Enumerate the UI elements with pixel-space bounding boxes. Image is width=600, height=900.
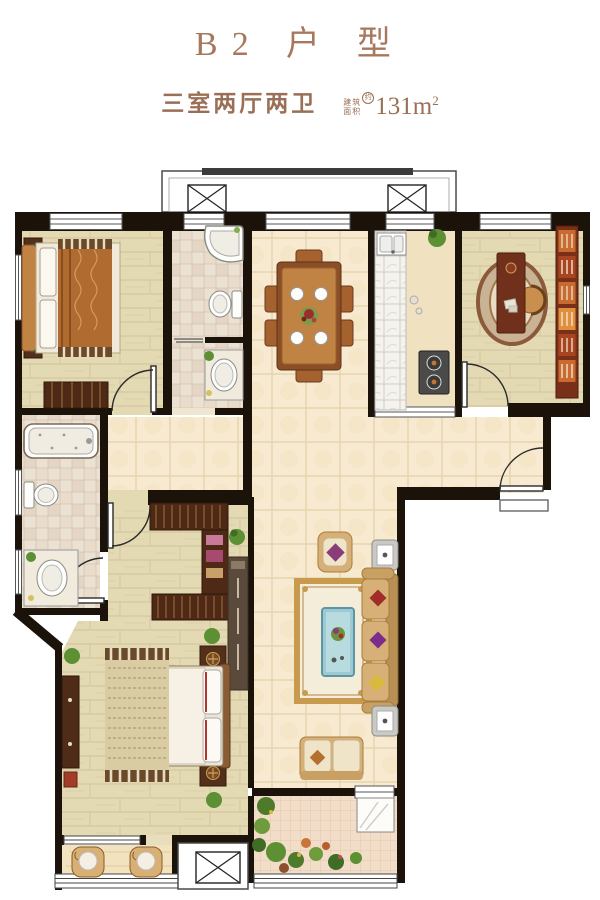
ac-platform-top xyxy=(162,168,456,212)
vanity-sink-icon xyxy=(24,550,78,606)
side-table-icon xyxy=(372,540,398,570)
window xyxy=(16,470,22,515)
bookshelf-icon xyxy=(556,226,578,398)
chaise-icon xyxy=(300,737,363,780)
dresser xyxy=(62,676,79,768)
lounge-chair-icon xyxy=(72,847,104,877)
centerpiece-flowers xyxy=(300,307,318,325)
east-wall-study xyxy=(583,231,590,417)
west-wall-lower xyxy=(55,645,62,890)
coffee-table-icon xyxy=(322,608,354,676)
window xyxy=(386,214,434,230)
window xyxy=(64,836,140,844)
tv-cabinet xyxy=(228,557,248,690)
sofa-icon xyxy=(362,568,398,713)
dresser xyxy=(44,382,108,408)
chamfer-wall xyxy=(16,611,60,648)
plant-icon xyxy=(206,792,222,808)
plant-icon xyxy=(204,628,220,644)
railing xyxy=(55,874,178,888)
window xyxy=(16,550,22,594)
hall-floor xyxy=(108,417,543,493)
window xyxy=(16,255,22,320)
toilet-icon xyxy=(24,482,58,508)
stove-icon xyxy=(419,351,449,394)
lounge-chair-icon xyxy=(130,847,162,877)
window xyxy=(584,286,590,314)
armchair-icon xyxy=(318,532,352,572)
entry-step xyxy=(500,500,548,511)
door-mat xyxy=(357,798,394,832)
ac-unit-icon xyxy=(196,852,240,883)
sliding-door xyxy=(355,786,394,798)
floor-plan-svg xyxy=(0,0,600,900)
fringe-rug xyxy=(105,648,169,782)
window xyxy=(266,214,350,230)
bathtub-icon xyxy=(24,424,98,458)
side-table-icon xyxy=(372,706,398,736)
kitchen-counter xyxy=(375,231,406,410)
toilet-icon xyxy=(209,291,242,318)
kitchen-sink-icon xyxy=(377,233,406,255)
desk-icon xyxy=(497,253,525,333)
vanity-sink-icon xyxy=(204,350,243,400)
ac-platform-bottom xyxy=(178,843,248,889)
ac-unit-icon xyxy=(388,185,426,212)
ac-unit-icon xyxy=(188,185,226,212)
window xyxy=(480,214,551,230)
lintel-bar xyxy=(202,168,413,175)
plant-icon xyxy=(64,648,80,664)
stool xyxy=(64,772,77,787)
window xyxy=(50,214,122,230)
tv-wall xyxy=(248,497,254,788)
railing xyxy=(254,874,397,888)
dining-set xyxy=(265,250,353,382)
bed-icon xyxy=(22,239,120,357)
